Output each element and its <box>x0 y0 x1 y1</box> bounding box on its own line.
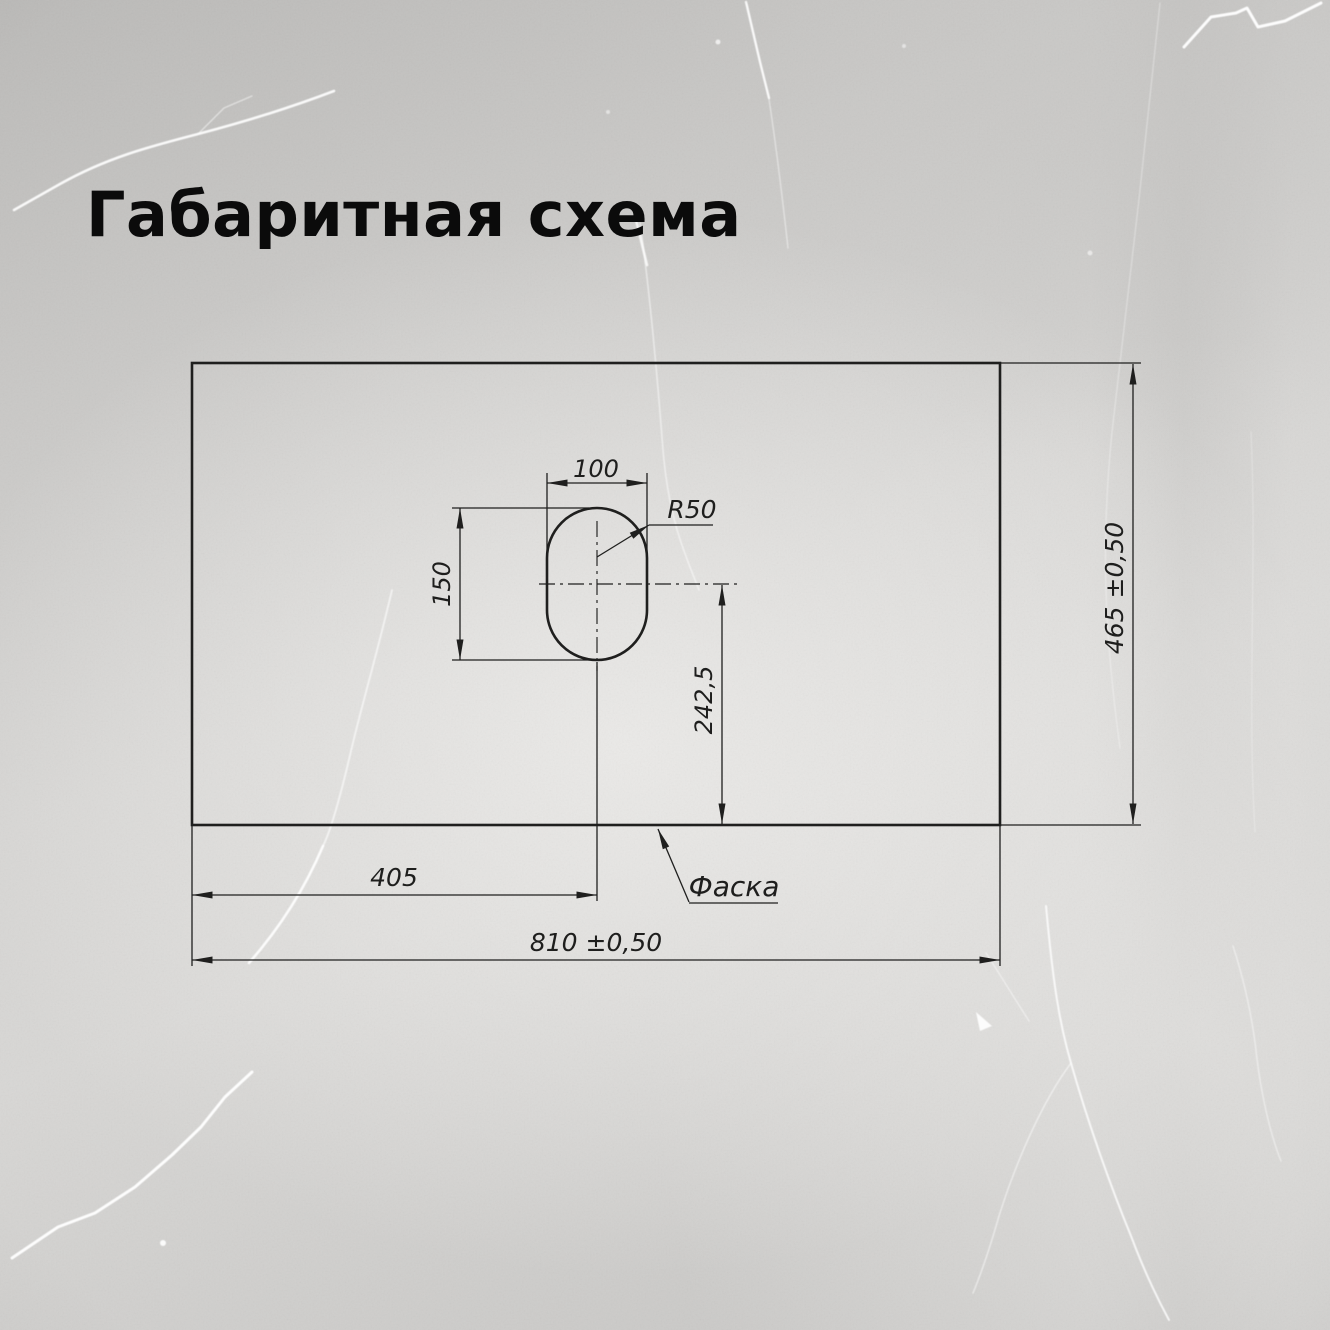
chamfer-label: Фаска <box>689 870 780 903</box>
dim-cutout-width-label: 100 <box>573 455 619 483</box>
dim-panel-width-label: 810 ±0,50 <box>530 928 662 957</box>
marble-fleck <box>902 44 906 48</box>
marble-fleck <box>1088 251 1093 256</box>
dim-cutout-height-label: 150 <box>428 561 456 607</box>
page-title: Габаритная схема <box>86 182 742 247</box>
dim-cutout-offset-bottom-label: 242,5 <box>690 666 718 735</box>
marble-fleck <box>160 1240 166 1246</box>
dim-cutout-radius-label: R50 <box>667 495 716 524</box>
dim-panel-height-label: 465 ±0,50 <box>1100 522 1129 654</box>
marble-fleck <box>716 40 721 45</box>
dim-cutout-offset-left-label: 405 <box>370 863 418 892</box>
marble-fleck <box>606 110 610 114</box>
